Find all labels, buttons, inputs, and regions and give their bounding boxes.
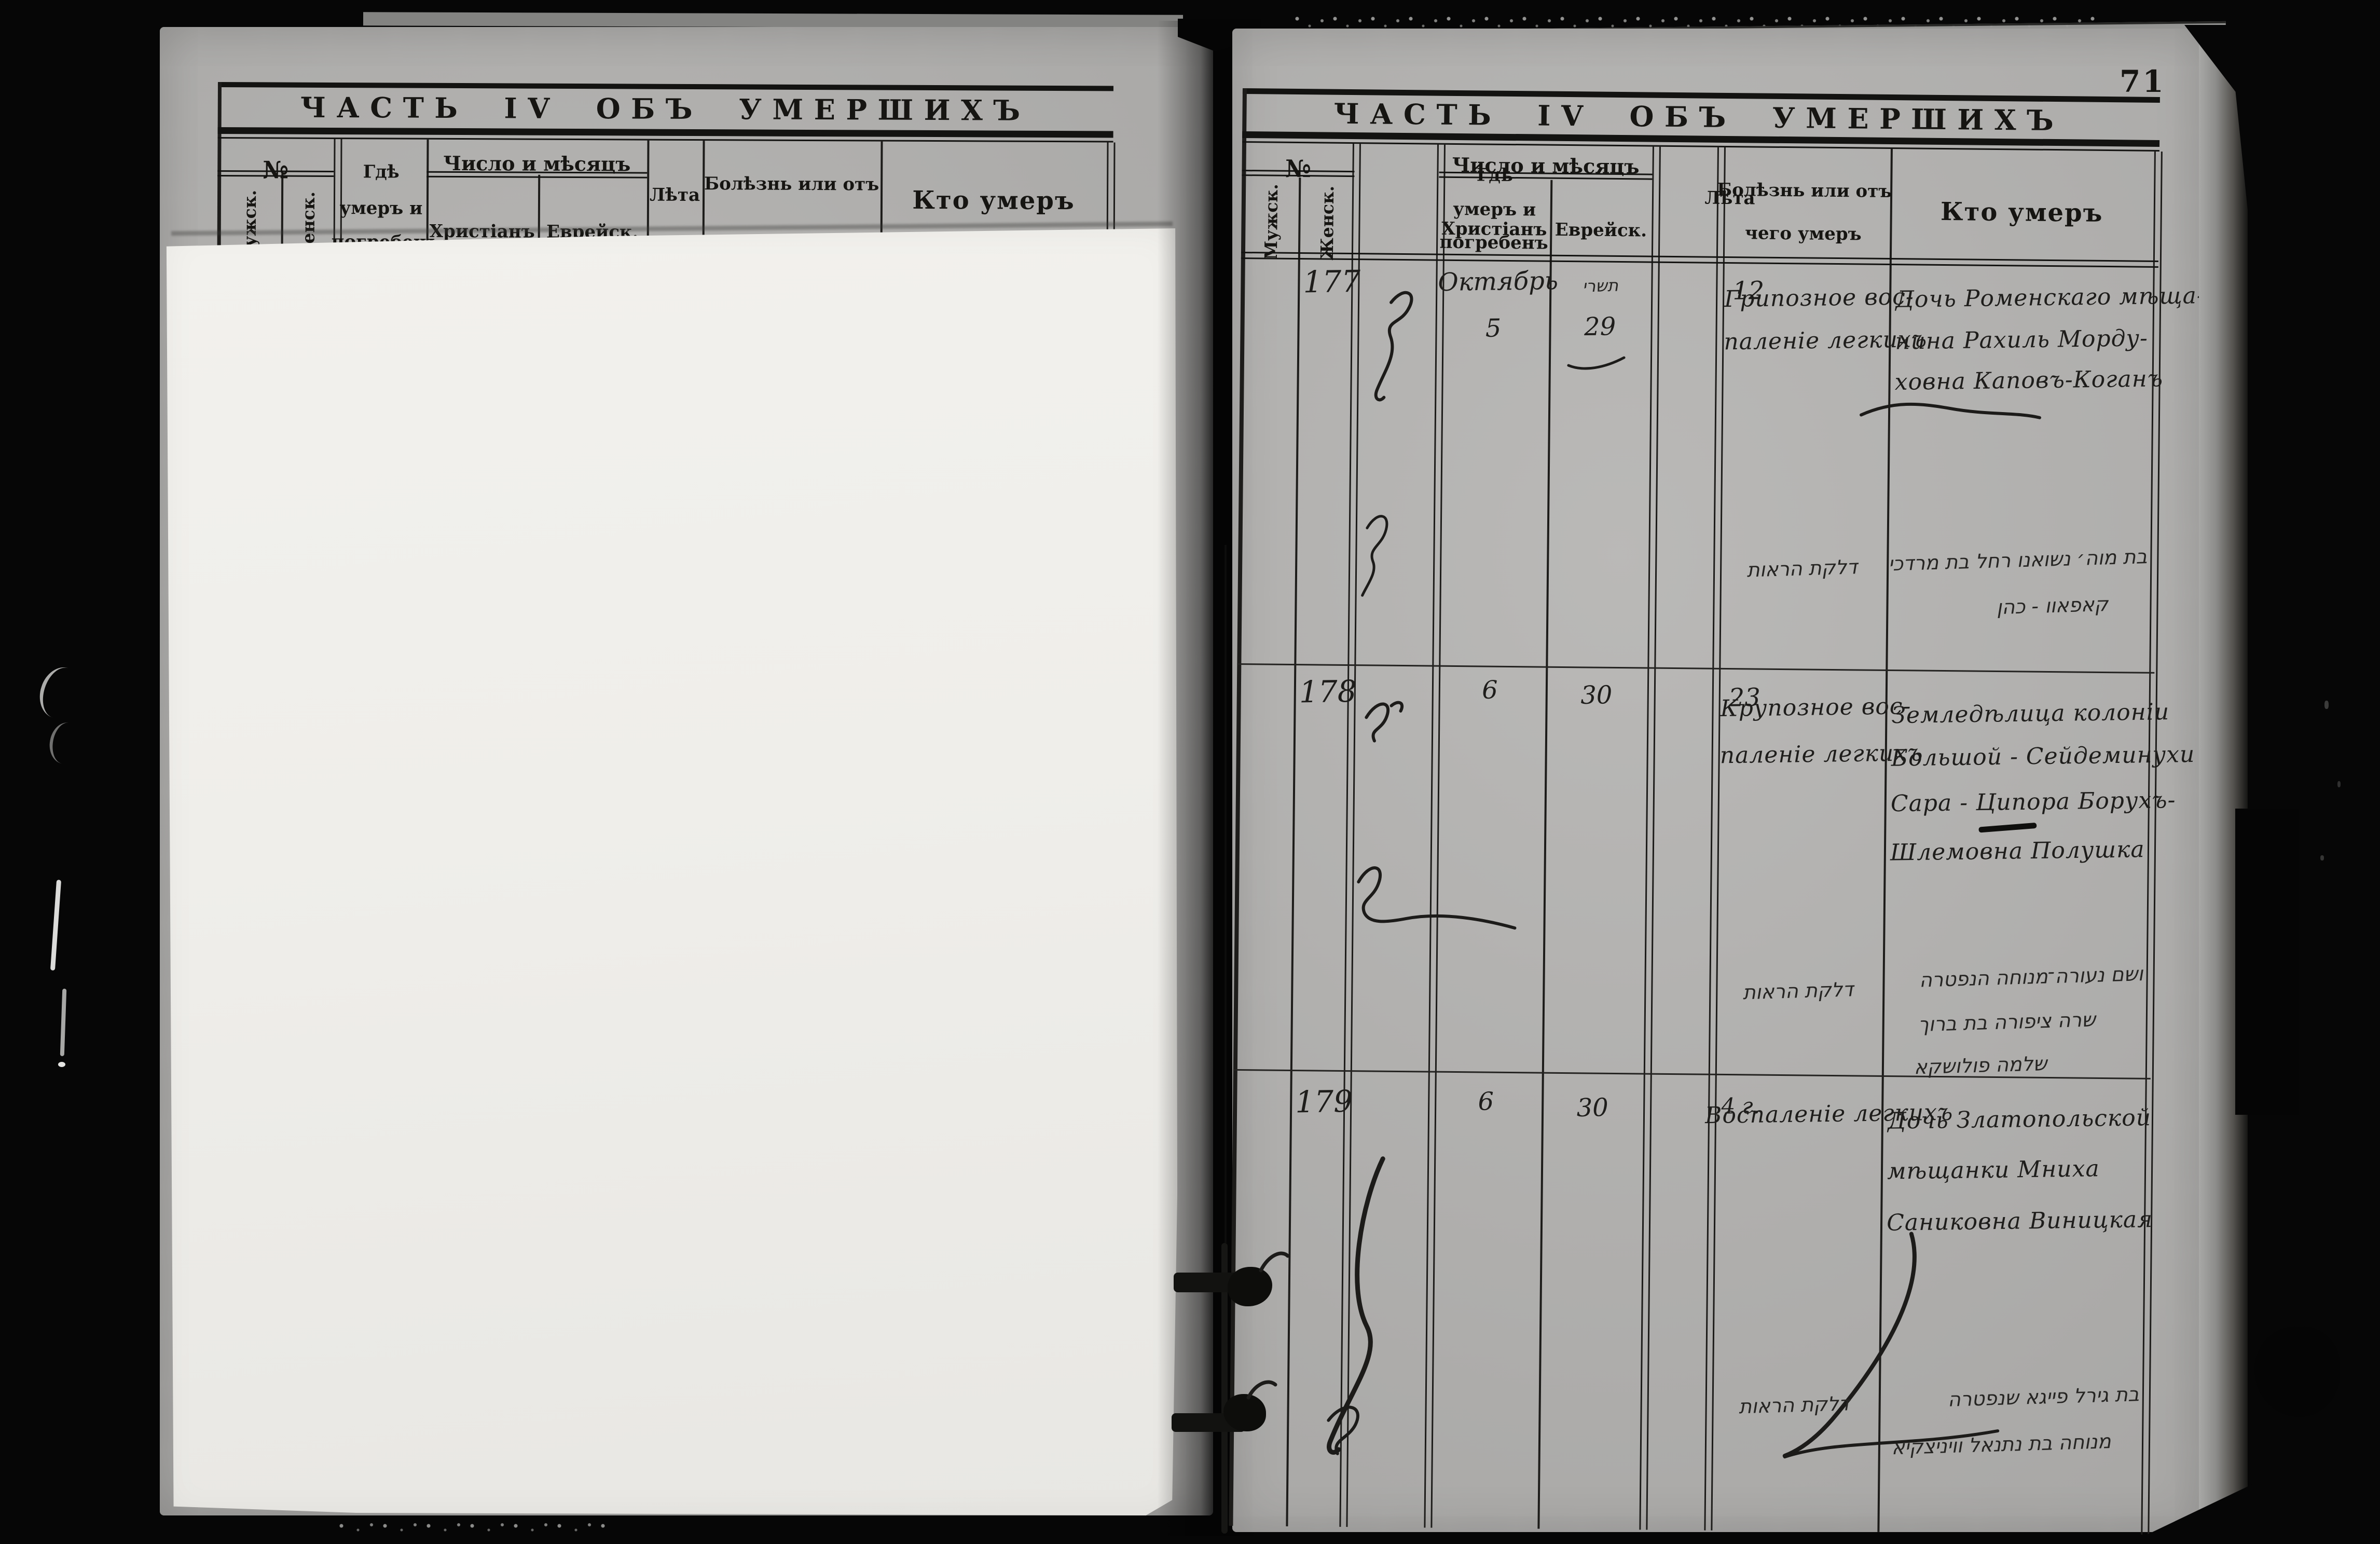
right-col-who: Кто умеръ	[1890, 197, 2154, 228]
loose-blank-sheet	[163, 228, 1178, 1515]
who-line: Большой - Сейдеминухи	[1891, 741, 2195, 772]
day-underline-flourish	[1566, 351, 1628, 372]
disease-line: Крупозное вос-	[1720, 693, 1911, 722]
who-line: Шлемовна Полушка	[1890, 836, 2145, 866]
left-col-age: Лѣта	[647, 185, 703, 206]
left-col-disease-1: Болѣзнь или отъ	[703, 173, 881, 195]
scan-black-blob	[2254, 1327, 2340, 1417]
hebrew-note-line: קאפאוו - כהן	[1979, 592, 2125, 619]
cover-edge-arc	[33, 662, 87, 724]
right-table-left-border	[1229, 88, 1247, 1526]
left-title-underline-thin	[218, 137, 1113, 143]
right-col-no: №	[1242, 154, 1355, 183]
left-page-title: ЧАСТЬ IV ОБЪ УМЕРШИХЪ	[218, 90, 1113, 128]
right-col-christian: Христіанъ	[1438, 218, 1550, 240]
scanned-register-spread: ЧАСТЬ IV ОБЪ УМЕРШИХЪ № Мужск. Женск. Гд…	[0, 0, 2380, 1544]
death-day-christian: 5	[1437, 313, 1549, 344]
name-underline-flourish	[1754, 1222, 2026, 1469]
hebrew-disease-note: דלקת הראות	[1717, 977, 1879, 1005]
hebrew-note-line: שלמה פולושקא	[1881, 1051, 2079, 1080]
entry-number: 179	[1295, 1084, 1353, 1119]
cover-edge-streak	[60, 989, 67, 1056]
right-page: 71 ЧАСТЬ IV ОБЪ УМЕРШИХЪ № Мужск. Женск.…	[1232, 29, 2200, 1532]
cover-edge-streak	[50, 880, 61, 971]
row-separator-177-178	[1237, 663, 2154, 674]
right-col-disease-2: чего умеръ	[1716, 223, 1890, 245]
right-col-jewish: Еврейск.	[1550, 220, 1652, 241]
death-day-christian: 6	[1434, 675, 1546, 705]
who-line: Дочь Златопольской	[1888, 1104, 2152, 1135]
hebrew-note-line: בת מוה׳ נשואנו רחל בת מרדכי	[1888, 545, 2148, 575]
death-month-jewish: תשרי	[1549, 275, 1652, 297]
death-month-christian: Октябрь	[1438, 266, 1550, 297]
right-col-disease-1: Болѣзнь или отъ	[1717, 180, 1890, 202]
right-page-title: ЧАСТЬ IV ОБЪ УМЕРШИХЪ	[1242, 96, 2156, 138]
left-date-rule	[427, 176, 647, 179]
left-table-top-border	[218, 82, 1113, 91]
left-col-who: Кто умеръ	[881, 186, 1107, 216]
left-title-underline-thick	[218, 127, 1113, 138]
who-line: Дочь Роменскаго мѣща-	[1895, 282, 2205, 313]
right-col-line	[1639, 147, 1661, 1530]
right-col-male: Мужск.	[1261, 182, 1282, 259]
place-handwriting-mark	[1349, 678, 1522, 960]
left-col-where-2: умеръ и	[336, 198, 427, 219]
who-line: нина Рахиль Морду-	[1895, 325, 2148, 354]
entry-number: 178	[1299, 674, 1357, 709]
hebrew-disease-note: דלקת הראות	[1722, 555, 1883, 582]
hebrew-disease-note: דלקת הראות	[1713, 1391, 1875, 1419]
page-stack-edge	[2199, 30, 2248, 1532]
binding-thread-hook	[1256, 1245, 1292, 1276]
death-day-jewish: 30	[1545, 680, 1647, 710]
who-line: Сара - Ципора Борухъ-	[1891, 787, 2176, 817]
death-day-jewish: 29	[1549, 311, 1651, 342]
right-col-line	[1537, 180, 1552, 1529]
right-col-line	[1704, 147, 1726, 1531]
margin-speck	[2324, 701, 2329, 709]
right-col-female: Женск.	[1317, 182, 1338, 260]
binding-thread-hook	[1244, 1374, 1281, 1403]
margin-speck	[2320, 855, 2324, 860]
place-handwriting-mark	[1352, 279, 1423, 601]
disease-line: Грипозное вос-	[1724, 283, 1914, 312]
right-col-where-2: умеръ и	[1439, 199, 1550, 221]
who-line: мѣщанки Мниха	[1887, 1155, 2100, 1184]
scan-black-patch	[2235, 809, 2299, 1115]
binding-fold-line-faint	[1225, 545, 1227, 1243]
name-underline-flourish	[1857, 395, 2044, 422]
right-table: ЧАСТЬ IV ОБЪ УМЕРШИХЪ № Мужск. Женск. Гд…	[1218, 29, 2200, 1541]
left-col-where-1: Гдѣ	[336, 161, 427, 183]
underpage-edge-left	[363, 12, 1183, 29]
who-line: Земледѣлица колоніи	[1891, 699, 2169, 729]
death-day-jewish: 30	[1542, 1092, 1644, 1123]
entry-number: 177	[1303, 264, 1361, 299]
hebrew-note-line: שרה ציפורה בת ברוך	[1892, 1007, 2121, 1037]
header-bottom-rule	[1241, 252, 2158, 262]
hebrew-note-line: ושם נעורה־מנוחה הנפטרה	[1883, 962, 2143, 992]
place-handwriting-mark	[1297, 1129, 1414, 1463]
ink-strike-mark	[1978, 823, 2037, 833]
cover-edge-arc	[47, 720, 85, 766]
death-day-christian: 6	[1430, 1086, 1542, 1117]
who-line: ховна Каповъ-Коганъ	[1894, 365, 2163, 395]
bottom-edge-speckles	[337, 1521, 607, 1534]
cover-edge-dot	[58, 1062, 65, 1067]
margin-speck	[2337, 781, 2341, 787]
